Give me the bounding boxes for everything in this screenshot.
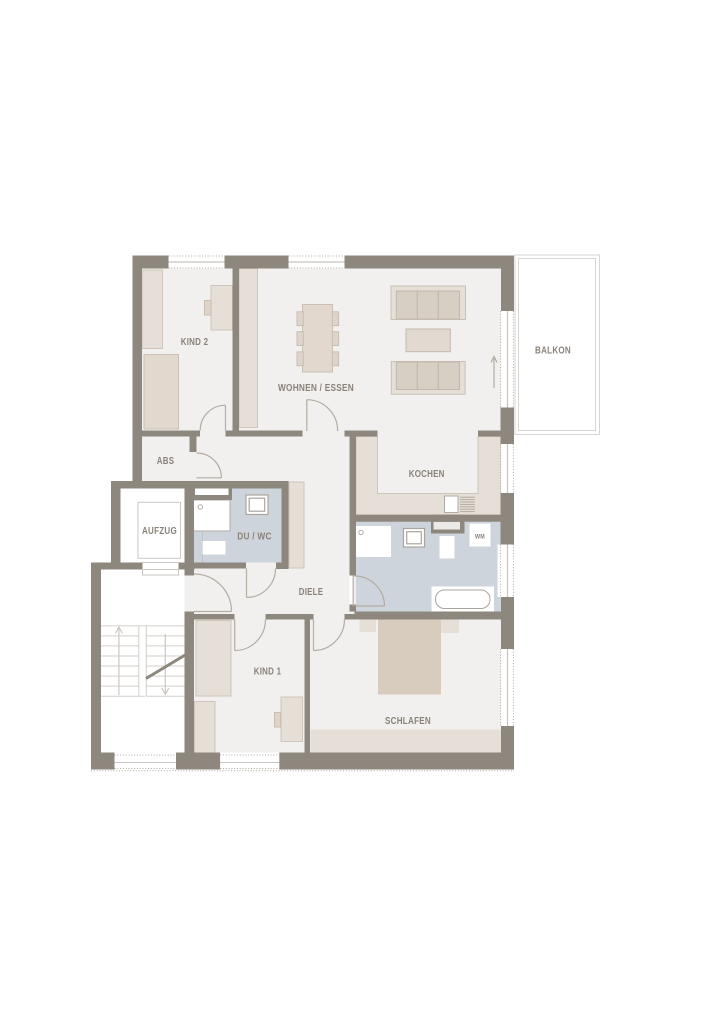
svg-text:DU / WC: DU / WC (237, 532, 272, 543)
svg-text:AUFZUG: AUFZUG (142, 526, 177, 537)
svg-text:DIELE: DIELE (299, 587, 324, 598)
svg-text:KOCHEN: KOCHEN (409, 469, 445, 480)
svg-text:ABS: ABS (157, 456, 175, 467)
svg-text:SCHLAFEN: SCHLAFEN (385, 716, 431, 727)
svg-text:WOHNEN / ESSEN: WOHNEN / ESSEN (278, 383, 354, 394)
svg-text:KIND 2: KIND 2 (181, 337, 209, 348)
svg-text:KIND 1: KIND 1 (254, 667, 282, 678)
svg-text:WM: WM (475, 534, 485, 541)
svg-text:BALKON: BALKON (535, 346, 571, 357)
